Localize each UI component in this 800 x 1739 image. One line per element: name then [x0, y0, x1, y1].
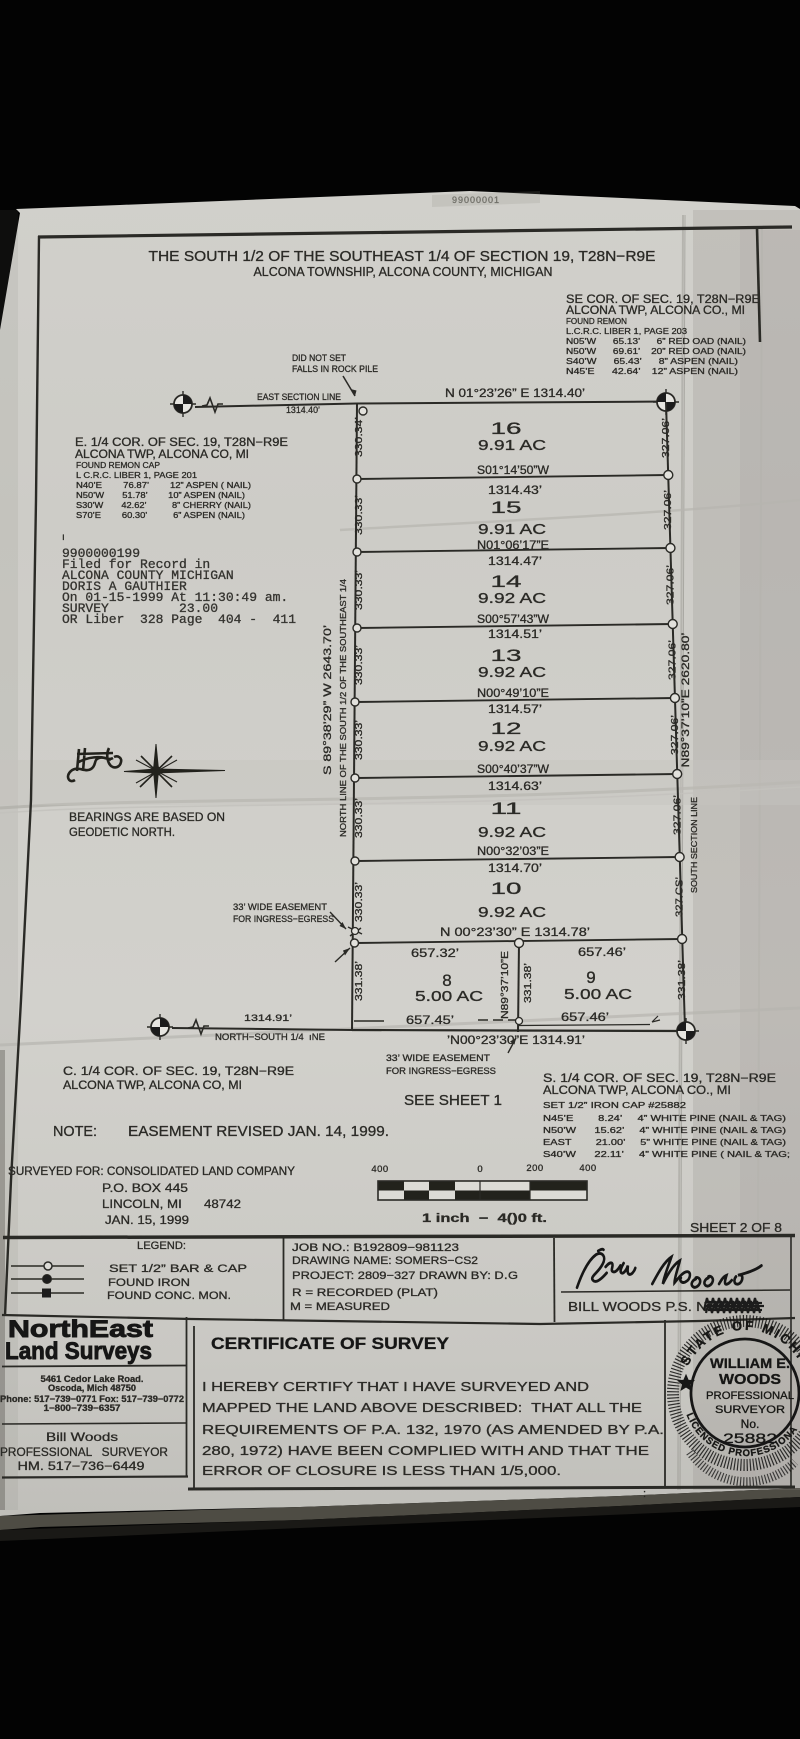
svg-text:9: 9	[586, 968, 595, 987]
svg-text:FOUND CONC. MON.: FOUND CONC. MON.	[107, 1290, 231, 1302]
svg-text:N45’E 42.64’ 12” ASPEN: N45’E 42.64’ 12” ASPEN (NAIL)	[566, 366, 738, 376]
svg-text:S40’W 65.43’ 8” ASPE: S40’W 65.43’ 8” ASPEN (NAIL)	[566, 356, 738, 366]
svg-text:C. 1/4 COR. OF SEC. 19, T28N−R: C. 1/4 COR. OF SEC. 19, T28N−R9E	[63, 1066, 294, 1078]
svg-text:S00°40’37”W: S00°40’37”W	[477, 764, 549, 776]
svg-text:SURVEYOR: SURVEYOR	[715, 1404, 785, 1416]
svg-text:33’ WIDE EASEMENT: 33’ WIDE EASEMENT	[386, 1053, 490, 1064]
svg-text:LINCOLN, MI 48742: LINCOLN, MI 48742	[102, 1197, 241, 1211]
svg-text:Oscoda, Mich 48750: Oscoda, Mich 48750	[48, 1383, 136, 1393]
svg-text:331.38’: 331.38’	[676, 960, 688, 1000]
svg-text:5.00 AC: 5.00 AC	[564, 986, 632, 1003]
svg-text:S00°57’43”W: S00°57’43”W	[477, 614, 549, 626]
svg-text:FOUND IRON: FOUND IRON	[108, 1277, 190, 1289]
svg-text:S30’W 42.62’ 8”: S30’W 42.62’ 8” CHERRY (NAIL)	[76, 500, 251, 510]
svg-text:N05’W 65.13’ 6” RED: N05’W 65.13’ 6” RED OAD (NAIL)	[566, 336, 746, 346]
svg-text:SOUTH SECTION LINE: SOUTH SECTION LINE	[689, 797, 699, 893]
svg-text:I HEREBY CERTIFY THAT I HAVE S: I HEREBY CERTIFY THAT I HAVE SURVEYED AN…	[202, 1379, 589, 1394]
svg-text:10: 10	[491, 879, 522, 898]
svg-text:ALCONA TOWNSHIP, ALCONA COUNTY: ALCONA TOWNSHIP, ALCONA COUNTY, MICHIGAN	[254, 264, 553, 279]
svg-text:ı: ı	[62, 532, 65, 543]
svg-text:280, 1972) HAVE BEEN COMPLIED: 280, 1972) HAVE BEEN COMPLIED WITH AND T…	[202, 1443, 649, 1458]
svg-text:9.92 AC: 9.92 AC	[478, 824, 546, 841]
svg-text:1314.63’: 1314.63’	[488, 781, 542, 793]
svg-text:9.92 AC: 9.92 AC	[478, 904, 546, 921]
svg-text:9.91 AC: 9.91 AC	[478, 437, 546, 454]
svg-text:400: 400	[371, 1164, 388, 1175]
svg-text:WOODS: WOODS	[719, 1371, 781, 1388]
svg-text:330.33’: 330.33’	[353, 495, 365, 535]
svg-text:N45’E 8.24’ 4” WHIT: N45’E 8.24’ 4” WHITE PINE (NAIL & TAG)	[543, 1113, 786, 1123]
svg-text:HM. 517−736−6449: HM. 517−736−6449	[18, 1459, 145, 1473]
svg-text:N01°06’17”E: N01°06’17”E	[477, 540, 549, 552]
svg-text:FOUND REMON: FOUND REMON	[566, 316, 627, 326]
svg-text:657.32’: 657.32’	[411, 948, 459, 960]
svg-text:REQUIREMENTS OF P.A. 132, 1970: REQUIREMENTS OF P.A. 132, 1970 (AS AMEND…	[202, 1422, 664, 1437]
svg-text:FOR INGRESS−EGRESS: FOR INGRESS−EGRESS	[386, 1066, 496, 1077]
svg-text::: :	[643, 1488, 646, 1500]
svg-text:’N00°23’30”E 1314.91’: ’N00°23’30”E 1314.91’	[447, 1035, 585, 1047]
svg-text:1314.91’: 1314.91’	[244, 1013, 292, 1024]
svg-text:FOR INGRESS−EGRESS: FOR INGRESS−EGRESS	[233, 914, 334, 925]
svg-text:N50’W 15.62’ 4” WHITE: N50’W 15.62’ 4” WHITE PINE (NAIL & TAG)	[543, 1125, 786, 1135]
svg-text:NORTH LINE OF THE SOUTH 1/2 OF: NORTH LINE OF THE SOUTH 1/2 OF THE SOUTH…	[338, 579, 348, 837]
svg-text:ALCONA TWP, ALCONA CO., MI: ALCONA TWP, ALCONA CO., MI	[543, 1085, 731, 1097]
svg-text:FALLS IN ROCK PILE: FALLS IN ROCK PILE	[292, 364, 378, 375]
svg-text:9.92 AC: 9.92 AC	[478, 664, 546, 681]
svg-text:BILL WOODS P.S. N: BILL WOODS P.S. N	[568, 1299, 707, 1314]
svg-text:SEE SHEET 1: SEE SHEET 1	[404, 1092, 502, 1109]
svg-text:L C.R.C. LIBER 1, PAGE 201: L C.R.C. LIBER 1, PAGE 201	[76, 470, 197, 480]
svg-text:657.46’: 657.46’	[561, 1012, 609, 1024]
svg-text:No.: No.	[741, 1417, 760, 1431]
svg-text:330.33’: 330.33’	[353, 720, 365, 760]
svg-text:N40’E 76.87’ 12”: N40’E 76.87’ 12” ASPEN ( NAIL)	[76, 480, 251, 490]
svg-text:330.33’: 330.33’	[353, 798, 365, 838]
svg-text:S01°14’50”W: S01°14’50”W	[477, 465, 549, 477]
svg-text:1 inch − 4()0 ft.: 1 inch − 4()0 ft.	[422, 1211, 547, 1225]
svg-text:33’ WIDE EASEMENT: 33’ WIDE EASEMENT	[233, 902, 327, 913]
svg-text:PROFESSIONAL: PROFESSIONAL	[706, 1390, 794, 1402]
svg-text:NOTE:: NOTE:	[53, 1124, 97, 1140]
svg-text:OR Liber 328 Page 404 - 411: OR Liber 328 Page 404 - 411	[62, 612, 296, 627]
svg-text:S. 1/4 COR. OF SEC. 19, T28N−R: S. 1/4 COR. OF SEC. 19, T28N−R9E	[543, 1073, 776, 1085]
svg-text:CERTIFICATE OF SURVEY: CERTIFICATE OF SURVEY	[211, 1335, 449, 1353]
svg-text:330.33’: 330.33’	[353, 645, 365, 685]
svg-text:ALCONA TWP, ALCONA CO, MI: ALCONA TWP, ALCONA CO, MI	[63, 1080, 242, 1092]
svg-text:SURVEYED FOR: CONSOLIDATED LAN: SURVEYED FOR: CONSOLIDATED LAND COMPANY	[8, 1164, 295, 1178]
svg-text:1−800−739−6357: 1−800−739−6357	[44, 1403, 121, 1413]
svg-text:EAST 21.00’ 5” WHIT: EAST 21.00’ 5” WHITE PINE (NAIL & TAG)	[543, 1137, 786, 1147]
svg-text:15: 15	[491, 498, 522, 517]
svg-text:EASEMENT REVISED JAN. 14, 1999: EASEMENT REVISED JAN. 14, 1999.	[128, 1124, 389, 1140]
svg-text:1314.47’: 1314.47’	[488, 556, 542, 568]
svg-text:200: 200	[526, 1163, 543, 1174]
svg-text:16: 16	[491, 419, 522, 438]
svg-text:327.06’: 327.06’	[671, 795, 683, 835]
svg-text:SET 1/2” BAR & CAP: SET 1/2” BAR & CAP	[109, 1263, 247, 1275]
svg-text:LEGEND:: LEGEND:	[137, 1240, 186, 1252]
svg-text:N 00°23’30” E 1314.78’: N 00°23’30” E 1314.78’	[440, 927, 590, 939]
svg-text:SET 1/2” IRON CAP #25882: SET 1/2” IRON CAP #25882	[543, 1100, 686, 1110]
svg-text:9.91 AC: 9.91 AC	[478, 521, 546, 538]
svg-text:N50’W 51.78’ 10”: N50’W 51.78’ 10” ASPEN (NAIL)	[76, 490, 245, 500]
svg-text:9.92 AC: 9.92 AC	[478, 738, 546, 755]
svg-text:SHEET 2 OF 8: SHEET 2 OF 8	[690, 1221, 782, 1235]
svg-text:S 89°38’29” W 2643.70’: S 89°38’29” W 2643.70’	[322, 625, 334, 775]
svg-text:N00°32’03”E: N00°32’03”E	[477, 846, 549, 858]
svg-text:1314.70’: 1314.70’	[488, 863, 542, 875]
svg-text:330.33’: 330.33’	[353, 570, 365, 610]
svg-text:DRAWING NAME: SOMERS−CS2: DRAWING NAME: SOMERS−CS2	[292, 1255, 478, 1267]
svg-text:Bill Woods: Bill Woods	[46, 1430, 118, 1444]
svg-text:400: 400	[579, 1163, 596, 1174]
svg-text:DID NOT SET: DID NOT SET	[292, 353, 346, 364]
svg-text:13: 13	[491, 646, 522, 665]
svg-text:THE SOUTH 1/2 OF THE SOUTHEAST: THE SOUTH 1/2 OF THE SOUTHEAST 1/4 OF SE…	[149, 249, 656, 265]
svg-text:327.06’: 327.06’	[662, 490, 674, 530]
svg-text:E. 1/4 COR. OF SEC. 19, T28N−R: E. 1/4 COR. OF SEC. 19, T28N−R9E	[75, 437, 288, 449]
svg-text:330.34’: 330.34’	[353, 417, 365, 457]
svg-text:657.46’: 657.46’	[578, 947, 626, 959]
svg-text:FOUND REMON CAP: FOUND REMON CAP	[76, 460, 160, 470]
svg-text:JOB NO.: B192809−981123: JOB NO.: B192809−981123	[292, 1242, 459, 1254]
svg-text:ERROR OF CLOSURE IS LESS THAN: ERROR OF CLOSURE IS LESS THAN 1/5,000.	[202, 1463, 561, 1478]
svg-text:BEARINGS ARE BASED ON: BEARINGS ARE BASED ON	[69, 810, 225, 824]
svg-text:S40’W 22.11’ 4” WHITE: S40’W 22.11’ 4” WHITE PINE ( NAIL & TAG;	[543, 1149, 790, 1159]
svg-text:M = MEASURED: M = MEASURED	[290, 1301, 390, 1313]
svg-text:N89°37’10”E: N89°37’10”E	[499, 951, 511, 1019]
svg-text:1314.51’: 1314.51’	[488, 629, 542, 641]
svg-text:N89°37’10”E 2620.80’: N89°37’10”E 2620.80’	[680, 633, 692, 768]
svg-text:1314.40’: 1314.40’	[286, 405, 320, 416]
svg-text:327.06’: 327.06’	[664, 565, 676, 605]
svg-text:WILLIAM E.: WILLIAM E.	[710, 1356, 790, 1371]
svg-text:N00°49’10”E: N00°49’10”E	[477, 688, 549, 700]
svg-text:9.92 AC: 9.92 AC	[478, 590, 546, 607]
svg-text:NORTH−SOUTH 1/4 ıNE: NORTH−SOUTH 1/4 ıNE	[215, 1032, 325, 1043]
svg-text:327.06’: 327.06’	[667, 640, 679, 680]
svg-text:1314.57’: 1314.57’	[488, 704, 542, 716]
svg-text:14: 14	[491, 572, 522, 591]
svg-text:MAPPED THE LAND ABOVE DESCRIBE: MAPPED THE LAND ABOVE DESCRIBED: THAT AL…	[202, 1400, 642, 1415]
svg-text:331.38’: 331.38’	[353, 961, 365, 1001]
svg-text:11: 11	[491, 799, 522, 818]
svg-text:PROFESSIONAL SURVEYOR: PROFESSIONAL SURVEYOR	[0, 1445, 168, 1459]
svg-text:N 01°23’26” E 1314.40’: N 01°23’26” E 1314.40’	[445, 388, 585, 400]
svg-text:1314.43’: 1314.43’	[488, 485, 542, 497]
svg-text:Land Surveys: Land Surveys	[5, 1338, 152, 1365]
svg-text:S70’E 60.30’ 6: S70’E 60.30’ 6” ASPEN (NAIL)	[76, 510, 245, 520]
svg-text:25882: 25882	[723, 1430, 777, 1446]
svg-text:330.33’: 330.33’	[353, 882, 365, 922]
svg-text:L.C.R.C. LIBER 1, PAGE 203: L.C.R.C. LIBER 1, PAGE 203	[566, 326, 687, 336]
svg-text:R = RECORDED (PLAT): R = RECORDED (PLAT)	[292, 1287, 438, 1299]
svg-text:331.38’: 331.38’	[522, 963, 534, 1003]
svg-text:PROJECT: 2809−327 DRAWN BY: D․: PROJECT: 2809−327 DRAWN BY: D․G	[292, 1270, 518, 1282]
svg-text:657.45’: 657.45’	[406, 1015, 454, 1027]
svg-text:N50’W 69.61’ 20” RED O: N50’W 69.61’ 20” RED OAD (NAIL)	[566, 346, 746, 356]
svg-text:327.CS’: 327.CS’	[674, 877, 686, 917]
svg-text:5.00 AC: 5.00 AC	[415, 988, 483, 1005]
svg-text:327.06’: 327.06’	[660, 418, 672, 458]
svg-text:P.O. BOX 445: P.O. BOX 445	[102, 1181, 188, 1195]
svg-text:GEODETIC NORTH.: GEODETIC NORTH.	[69, 825, 175, 839]
svg-text:12: 12	[491, 719, 522, 738]
svg-text:JAN. 15, 1999: JAN. 15, 1999	[105, 1213, 189, 1227]
svg-text:EAST SECTION LINE: EAST SECTION LINE	[257, 392, 341, 403]
svg-text:0: 0	[477, 1164, 482, 1175]
